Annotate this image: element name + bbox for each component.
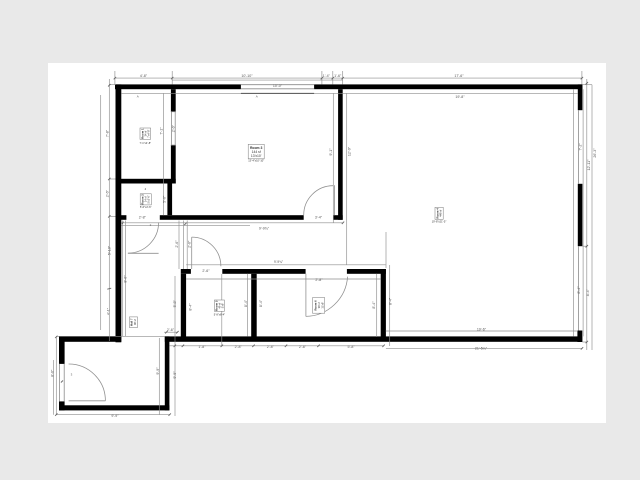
- svg-text:5'-8": 5'-8": [348, 345, 356, 349]
- svg-text:5'x2'-6": 5'x2'-6": [147, 195, 151, 203]
- svg-text:8'-6": 8'-6": [51, 369, 55, 377]
- svg-text:1'-8": 1'-8": [198, 345, 206, 349]
- svg-text:21'-5¼": 21'-5¼": [475, 347, 488, 351]
- svg-text:13'-4"x10'-10": 13'-4"x10'-10": [248, 159, 264, 163]
- svg-text:Room 6: Room 6: [314, 300, 318, 311]
- svg-text:8'-6": 8'-6": [124, 275, 128, 283]
- svg-text:8'-4": 8'-4": [586, 288, 590, 296]
- svg-text:1'-6": 1'-6": [334, 74, 342, 78]
- svg-text:9'-9": 9'-9": [156, 367, 160, 375]
- svg-text:2'-8": 2'-8": [267, 345, 275, 349]
- svg-text:10'-10": 10'-10": [241, 74, 253, 78]
- svg-text:7'-1": 7'-1": [159, 127, 163, 135]
- svg-text:5'-8": 5'-8": [173, 299, 177, 307]
- svg-text:A: A: [256, 95, 258, 99]
- svg-text:7'-1"x4'-8": 7'-1"x4'-8": [139, 141, 151, 145]
- svg-text:5'-6": 5'-6": [162, 195, 166, 203]
- svg-text:13'x10': 13'x10': [251, 154, 262, 158]
- svg-text:1'-4": 1'-4": [323, 74, 331, 78]
- svg-text:2'-6": 2'-6": [167, 328, 175, 332]
- svg-text:4: 4: [145, 187, 147, 191]
- svg-text:2'-6": 2'-6": [175, 240, 179, 248]
- svg-text:2'-8": 2'-8": [299, 345, 307, 349]
- svg-text:7'x4'-8": 7'x4'-8": [146, 129, 150, 137]
- svg-text:9'-9¾": 9'-9¾": [274, 260, 283, 264]
- svg-text:5'-6"x2'-6": 5'-6"x2'-6": [140, 205, 152, 209]
- svg-text:5'x8': 5'x8': [221, 303, 225, 309]
- svg-text:9'-1": 9'-1": [329, 148, 333, 156]
- svg-text:448 sf: 448 sf: [439, 209, 443, 216]
- svg-text:2'-6": 2'-6": [105, 189, 109, 197]
- svg-text:A: A: [137, 94, 139, 98]
- svg-text:2'-8": 2'-8": [139, 215, 147, 219]
- svg-text:5'-8"x8'-4": 5'-8"x8'-4": [214, 314, 225, 317]
- svg-text:2'-6": 2'-6": [187, 240, 191, 248]
- svg-text:19'-6": 19'-6": [477, 327, 487, 331]
- svg-text:11'x8': 11'x8': [321, 302, 325, 309]
- svg-text:17'-6": 17'-6": [454, 74, 464, 78]
- svg-text:8'-4": 8'-4": [389, 297, 393, 305]
- svg-text:8'-4": 8'-4": [244, 299, 248, 307]
- svg-text:98 sf: 98 sf: [317, 302, 321, 308]
- svg-text:3: 3: [71, 372, 73, 376]
- svg-text:8'-4": 8'-4": [259, 299, 263, 307]
- svg-text:2'-6": 2'-6": [202, 269, 210, 273]
- svg-text:4'-1": 4'-1": [107, 307, 111, 315]
- svg-text:2'-8": 2'-8": [315, 278, 323, 282]
- svg-text:9'-9": 9'-9": [173, 371, 177, 379]
- svg-text:2'-8": 2'-8": [235, 345, 243, 349]
- svg-text:3'-4": 3'-4": [315, 216, 323, 220]
- svg-text:98 sf: 98 sf: [133, 319, 137, 325]
- svg-text:5'-10": 5'-10": [107, 245, 111, 255]
- svg-text:10'-0": 10'-0": [273, 84, 283, 88]
- svg-text:4'-8": 4'-8": [140, 74, 148, 78]
- svg-text:7'-8": 7'-8": [105, 129, 109, 137]
- svg-text:12'-9": 12'-9": [347, 146, 351, 156]
- svg-text:19'-8"x21'-5": 19'-8"x21'-5": [432, 220, 447, 224]
- svg-text:26'-3": 26'-3": [593, 148, 597, 158]
- svg-text:8'-4": 8'-4": [189, 303, 193, 311]
- svg-text:8'-4": 8'-4": [372, 301, 376, 309]
- svg-text:12'-11": 12'-11": [587, 159, 591, 171]
- svg-text:7'-2": 7'-2": [579, 143, 583, 151]
- svg-text:19'-8": 19'-8": [455, 95, 465, 99]
- svg-text:8'-4": 8'-4": [577, 286, 581, 294]
- svg-text:2: 2: [150, 223, 152, 227]
- svg-text:9'-9¾": 9'-9¾": [259, 227, 270, 231]
- svg-text:2'-6": 2'-6": [172, 124, 176, 132]
- svg-text:9'-9": 9'-9": [111, 414, 119, 418]
